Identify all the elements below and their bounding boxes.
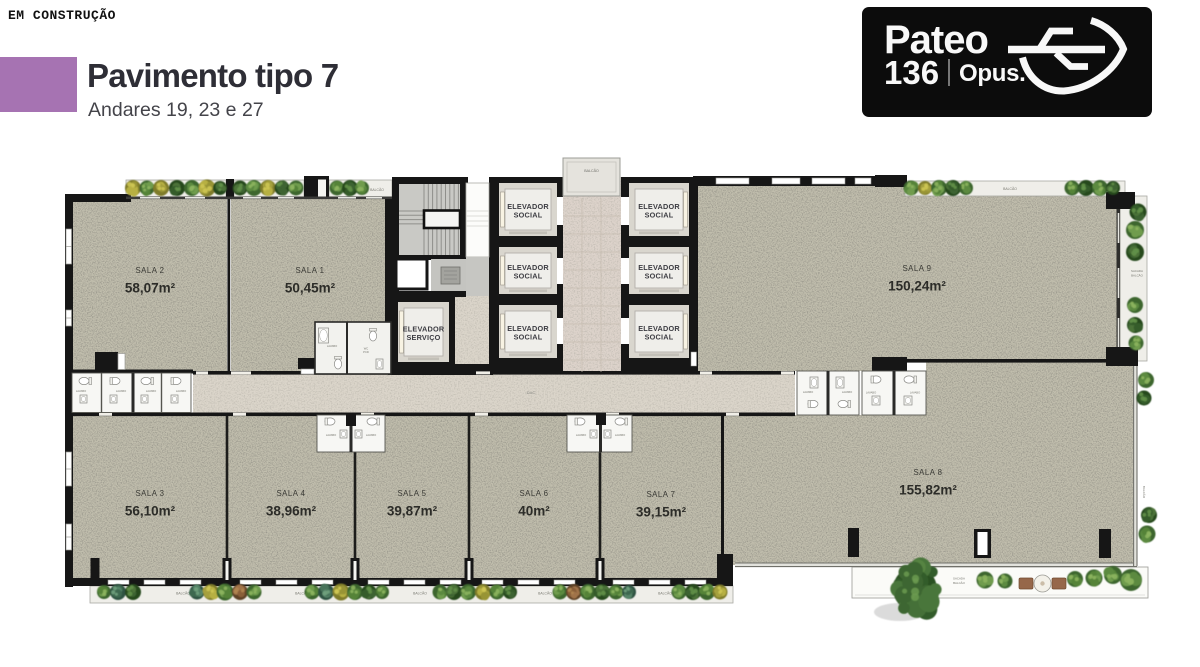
- svg-text:SALA 7: SALA 7: [646, 490, 675, 499]
- svg-text:BALCÃO: BALCÃO: [176, 591, 190, 596]
- svg-text:SOCIAL: SOCIAL: [514, 333, 543, 342]
- svg-text:Andares 19, 23 e 27: Andares 19, 23 e 27: [88, 99, 264, 121]
- svg-text:BALCÃO: BALCÃO: [370, 187, 384, 192]
- svg-text:BALCÃO: BALCÃO: [584, 168, 599, 173]
- svg-text:58,07m²: 58,07m²: [125, 281, 176, 296]
- svg-text:SOCIAL: SOCIAL: [645, 211, 674, 220]
- svg-text:SALA 1: SALA 1: [295, 266, 324, 275]
- svg-text:BALCÃO: BALCÃO: [658, 591, 672, 596]
- svg-text:LAVABO: LAVABO: [842, 390, 852, 394]
- svg-text:LAVABO: LAVABO: [803, 390, 813, 394]
- svg-text:LAVABO: LAVABO: [327, 344, 337, 348]
- svg-text:LAVABO: LAVABO: [366, 433, 376, 437]
- svg-text:BALCÃO: BALCÃO: [1142, 486, 1147, 499]
- svg-text:BALCÃO: BALCÃO: [413, 591, 427, 596]
- svg-text:SALA 3: SALA 3: [135, 489, 164, 498]
- svg-text:56,10m²: 56,10m²: [125, 504, 176, 519]
- svg-text:LAVABO: LAVABO: [146, 389, 156, 393]
- svg-text:LAVABO: LAVABO: [910, 391, 920, 395]
- svg-text:SALA 9: SALA 9: [902, 264, 931, 273]
- svg-text:40m²: 40m²: [518, 504, 550, 519]
- svg-text:DAC: DAC: [527, 390, 536, 395]
- svg-text:SALA 2: SALA 2: [135, 266, 164, 275]
- svg-text:38,96m²: 38,96m²: [266, 504, 317, 519]
- svg-text:SOCIAL: SOCIAL: [645, 272, 674, 281]
- svg-text:SERVIÇO: SERVIÇO: [406, 333, 440, 342]
- svg-text:BALCÃO: BALCÃO: [953, 580, 965, 585]
- svg-text:LAVABO: LAVABO: [866, 391, 876, 395]
- svg-text:LAVABO: LAVABO: [326, 433, 336, 437]
- svg-text:150,24m²: 150,24m²: [888, 279, 946, 294]
- svg-text:SOCIAL: SOCIAL: [645, 333, 674, 342]
- svg-text:155,82m²: 155,82m²: [899, 483, 957, 498]
- svg-text:SALA 4: SALA 4: [276, 489, 305, 498]
- svg-text:SALA 5: SALA 5: [397, 489, 426, 498]
- svg-text:BALCÃO: BALCÃO: [538, 591, 552, 596]
- svg-text:LAVABO: LAVABO: [116, 389, 126, 393]
- svg-text:Pavimento tipo 7: Pavimento tipo 7: [87, 57, 338, 94]
- svg-text:SOCIAL: SOCIAL: [514, 272, 543, 281]
- svg-text:136: 136: [884, 54, 939, 91]
- svg-text:LAVABO: LAVABO: [615, 433, 625, 437]
- svg-text:BALCÃO: BALCÃO: [1131, 273, 1143, 278]
- svg-text:SALA 6: SALA 6: [519, 489, 548, 498]
- svg-text:50,45m²: 50,45m²: [285, 281, 336, 296]
- svg-text:BALCÃO: BALCÃO: [1003, 186, 1017, 191]
- svg-text:39,87m²: 39,87m²: [387, 504, 438, 519]
- svg-text:SACADA: SACADA: [953, 577, 965, 581]
- svg-text:39,15m²: 39,15m²: [636, 505, 687, 520]
- svg-text:SALA 8: SALA 8: [913, 468, 942, 477]
- svg-text:EM CONSTRUÇÃO: EM CONSTRUÇÃO: [8, 8, 116, 23]
- svg-text:SACADA: SACADA: [1131, 269, 1143, 273]
- svg-text:LAVABO: LAVABO: [576, 433, 586, 437]
- svg-text:LAVABO: LAVABO: [176, 389, 186, 393]
- svg-text:LAVABO: LAVABO: [76, 389, 86, 393]
- svg-text:SOCIAL: SOCIAL: [514, 211, 543, 220]
- svg-text:WC: WC: [364, 347, 369, 351]
- svg-text:Opus.: Opus.: [959, 60, 1026, 87]
- svg-text:PCD: PCD: [363, 350, 369, 354]
